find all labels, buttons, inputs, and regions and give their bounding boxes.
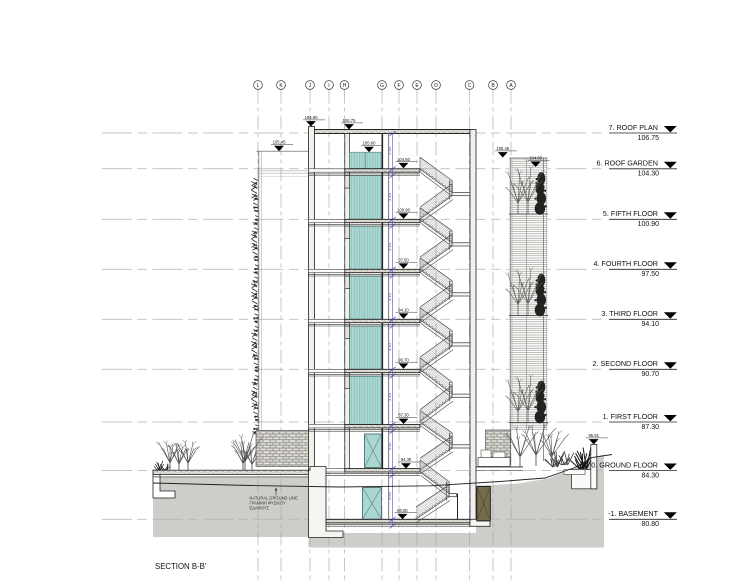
svg-text:-1. BASEMENT: -1. BASEMENT <box>608 509 659 518</box>
svg-text:80.80: 80.80 <box>397 508 408 513</box>
svg-text:97.50: 97.50 <box>398 257 409 262</box>
svg-text:7. ROOF PLAN: 7. ROOF PLAN <box>608 123 658 132</box>
svg-text:L: L <box>257 83 260 89</box>
svg-text:94.10: 94.10 <box>641 321 659 328</box>
svg-text:ΕΔΑΦΟΥΣ: ΕΔΑΦΟΥΣ <box>250 506 270 511</box>
svg-text:97.50: 97.50 <box>641 271 659 278</box>
svg-text:3.10: 3.10 <box>387 342 392 351</box>
svg-text:I: I <box>328 83 329 89</box>
svg-text:85.91: 85.91 <box>588 433 599 438</box>
svg-text:2. SECOND FLOOR: 2. SECOND FLOOR <box>593 359 659 368</box>
svg-text:3.10: 3.10 <box>387 242 392 251</box>
svg-text:0. GROUND FLOOR: 0. GROUND FLOOR <box>591 460 658 469</box>
svg-text:3.10: 3.10 <box>387 292 392 301</box>
svg-text:1. FIRST FLOOR: 1. FIRST FLOOR <box>603 412 658 421</box>
svg-text:105.45: 105.45 <box>496 146 509 151</box>
svg-text:D: D <box>434 83 438 89</box>
svg-text:105.45: 105.45 <box>273 140 286 145</box>
svg-text:106.75: 106.75 <box>343 118 356 123</box>
svg-text:3.10: 3.10 <box>387 392 392 401</box>
svg-text:87.30: 87.30 <box>641 424 659 431</box>
svg-text:106.75: 106.75 <box>638 135 660 142</box>
svg-text:3. THIRD FLOOR: 3. THIRD FLOOR <box>601 309 658 318</box>
svg-text:100.90: 100.90 <box>397 207 410 212</box>
svg-text:5. FIFTH FLOOR: 5. FIFTH FLOOR <box>603 209 658 218</box>
svg-text:105.60: 105.60 <box>363 141 376 146</box>
svg-text:6. ROOF GARDEN: 6. ROOF GARDEN <box>596 159 658 168</box>
svg-text:H: H <box>343 83 347 89</box>
svg-text:80.80: 80.80 <box>641 521 659 528</box>
svg-text:C: C <box>468 83 472 89</box>
svg-text:106.90: 106.90 <box>305 115 318 120</box>
svg-text:84.30: 84.30 <box>641 472 659 479</box>
svg-text:G: G <box>380 83 384 89</box>
svg-text:90.70: 90.70 <box>641 371 659 378</box>
svg-text:3.50: 3.50 <box>387 491 392 500</box>
svg-text:SECTION B-B': SECTION B-B' <box>155 562 207 571</box>
svg-text:94.10: 94.10 <box>398 307 409 312</box>
svg-text:4. FOURTH FLOOR: 4. FOURTH FLOOR <box>593 259 658 268</box>
svg-text:100.90: 100.90 <box>638 221 660 228</box>
svg-text:104.50: 104.50 <box>529 156 542 161</box>
svg-text:104.50: 104.50 <box>397 157 410 162</box>
svg-text:2.30: 2.30 <box>387 146 392 155</box>
svg-text:F: F <box>397 83 400 89</box>
svg-text:3.10: 3.10 <box>387 192 392 201</box>
svg-text:3.10: 3.10 <box>387 442 392 451</box>
svg-text:90.70: 90.70 <box>398 357 409 362</box>
svg-text:104.30: 104.30 <box>638 171 660 178</box>
svg-text:87.30: 87.30 <box>398 413 409 418</box>
svg-text:84.30: 84.30 <box>401 457 412 462</box>
